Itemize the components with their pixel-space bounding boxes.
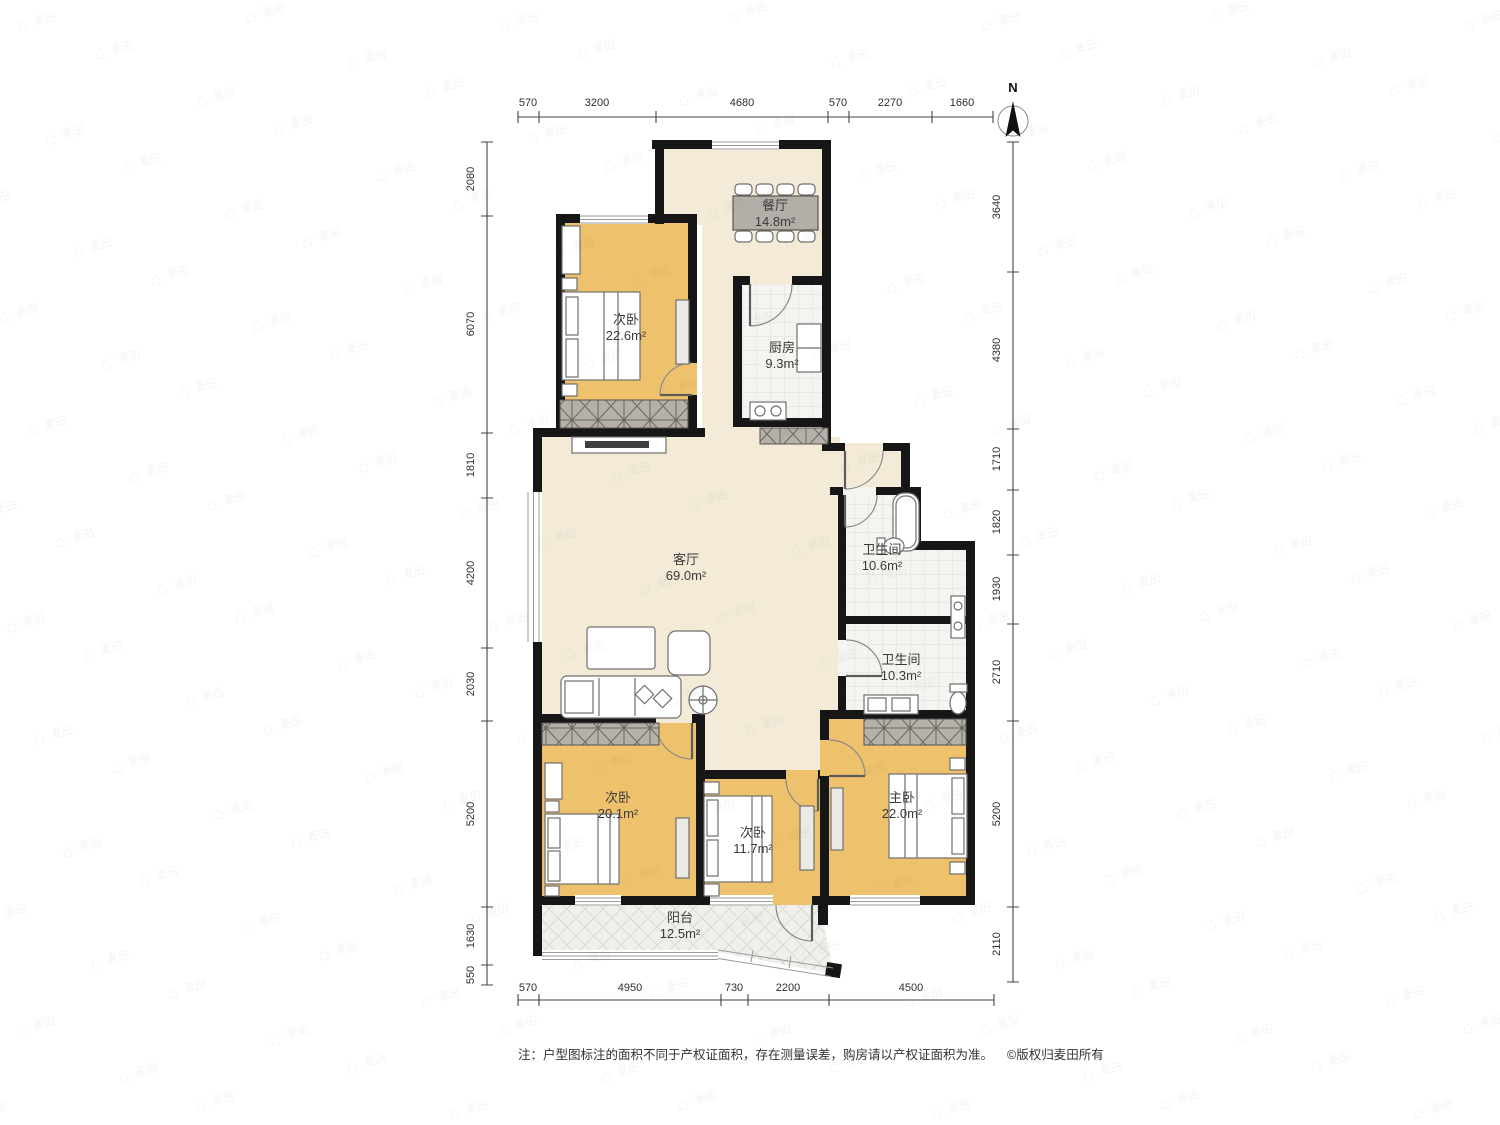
- dim-bottom-0: 570: [519, 982, 537, 994]
- dim-top-5: 1660: [950, 97, 974, 109]
- dim-right-1: 4380: [991, 338, 1003, 362]
- dim-top-4: 2270: [878, 97, 902, 109]
- room-name: 阳台: [660, 910, 700, 926]
- floorplan-canvas: ⌂ 麦田 ⌂ 麦田: [0, 0, 1500, 1125]
- room-name: 次卧: [733, 825, 773, 841]
- room-name: 厨房: [765, 340, 798, 356]
- dim-right-6: 5200: [991, 802, 1003, 826]
- room-area: 10.6m²: [862, 558, 902, 574]
- dim-right-7: 2110: [991, 932, 1003, 956]
- room-area: 22.0m²: [882, 806, 922, 822]
- note-text: 注：户型图标注的面积不同于产权证面积，存在测量误差，购房请以产权证面积为准。: [518, 1048, 993, 1062]
- dim-top-2: 4680: [730, 97, 754, 109]
- dim-left-3: 4200: [465, 561, 477, 585]
- dim-top-3: 570: [829, 97, 847, 109]
- dim-top-1: 3200: [585, 97, 609, 109]
- label-bath-lower: 卫生间 10.3m²: [881, 652, 921, 684]
- copyright-text: ©版权归麦田所有: [1007, 1048, 1104, 1062]
- watermark-layer: [0, 0, 1500, 1125]
- disclaimer-note: 注：户型图标注的面积不同于产权证面积，存在测量误差，购房请以产权证面积为准。©版…: [518, 1044, 1104, 1063]
- room-area: 14.8m²: [755, 214, 795, 230]
- room-name: 卫生间: [881, 652, 921, 668]
- dim-bottom-3: 2200: [776, 982, 800, 994]
- dim-right-2: 1710: [991, 447, 1003, 471]
- room-name: 次卧: [606, 312, 646, 328]
- floorplan-drawing: ⌂ 麦田 ⌂ 麦田: [0, 0, 1500, 1125]
- label-living: 客厅 69.0m²: [666, 552, 706, 584]
- dim-left-6: 1630: [465, 924, 477, 948]
- dim-right-0: 3640: [991, 195, 1003, 219]
- label-master: 主卧 22.0m²: [882, 790, 922, 822]
- room-area: 69.0m²: [666, 568, 706, 584]
- room-name: 卫生间: [862, 542, 902, 558]
- room-area: 20.1m²: [598, 806, 638, 822]
- dim-bottom-2: 730: [725, 982, 743, 994]
- dim-right-3: 1820: [991, 510, 1003, 534]
- room-area: 10.3m²: [881, 668, 921, 684]
- label-balcony: 阳台 12.5m²: [660, 910, 700, 942]
- label-dining: 餐厅 14.8m²: [755, 198, 795, 230]
- dim-bottom-4: 4500: [899, 982, 923, 994]
- room-name: 餐厅: [755, 198, 795, 214]
- dim-right-5: 2710: [991, 660, 1003, 684]
- room-area: 9.3m²: [765, 356, 798, 372]
- label-bath-upper: 卫生间 10.6m²: [862, 542, 902, 574]
- dim-left-1: 6070: [465, 312, 477, 336]
- dim-top-0: 570: [519, 97, 537, 109]
- dim-left-4: 2030: [465, 672, 477, 696]
- dim-left-5: 5200: [465, 802, 477, 826]
- dim-left-7: 550: [465, 966, 477, 984]
- dim-left-0: 2080: [465, 167, 477, 191]
- room-name: 客厅: [666, 552, 706, 568]
- label-bedroom-mid: 次卧 11.7m²: [733, 825, 773, 857]
- room-name: 次卧: [598, 790, 638, 806]
- label-bedroom-left: 次卧 20.1m²: [598, 790, 638, 822]
- label-kitchen: 厨房 9.3m²: [765, 340, 798, 372]
- room-name: 主卧: [882, 790, 922, 806]
- label-bedroom-top: 次卧 22.6m²: [606, 312, 646, 344]
- room-area: 22.6m²: [606, 328, 646, 344]
- room-area: 11.7m²: [733, 841, 773, 857]
- dim-right-4: 1930: [991, 577, 1003, 601]
- dim-left-2: 1810: [465, 453, 477, 477]
- dim-bottom-1: 4950: [618, 982, 642, 994]
- north-label: N: [1008, 80, 1017, 95]
- room-area: 12.5m²: [660, 926, 700, 942]
